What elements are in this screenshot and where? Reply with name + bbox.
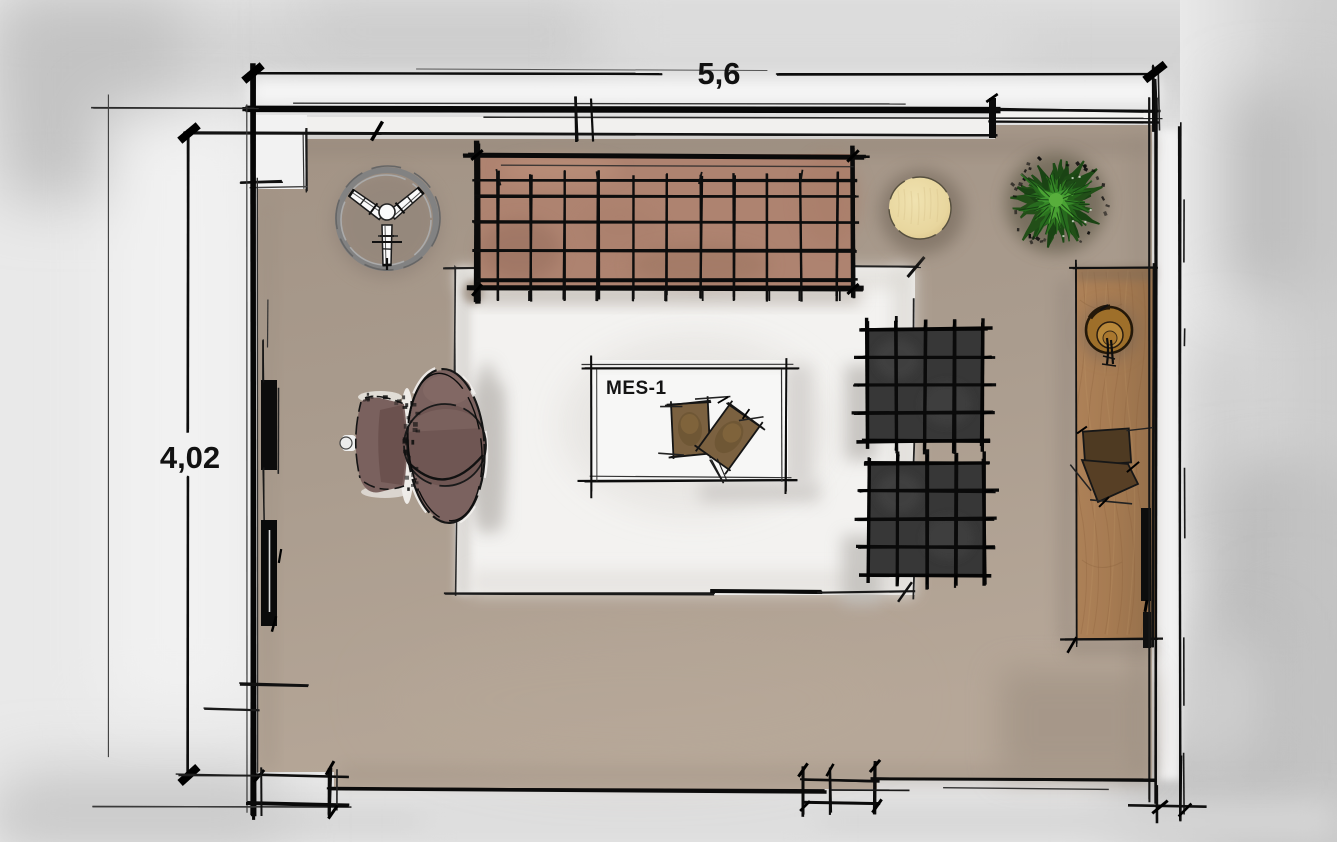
svg-text:4,02: 4,02 (160, 440, 220, 475)
svg-text:MES-1: MES-1 (606, 378, 667, 399)
svg-text:5,6: 5,6 (697, 56, 740, 91)
